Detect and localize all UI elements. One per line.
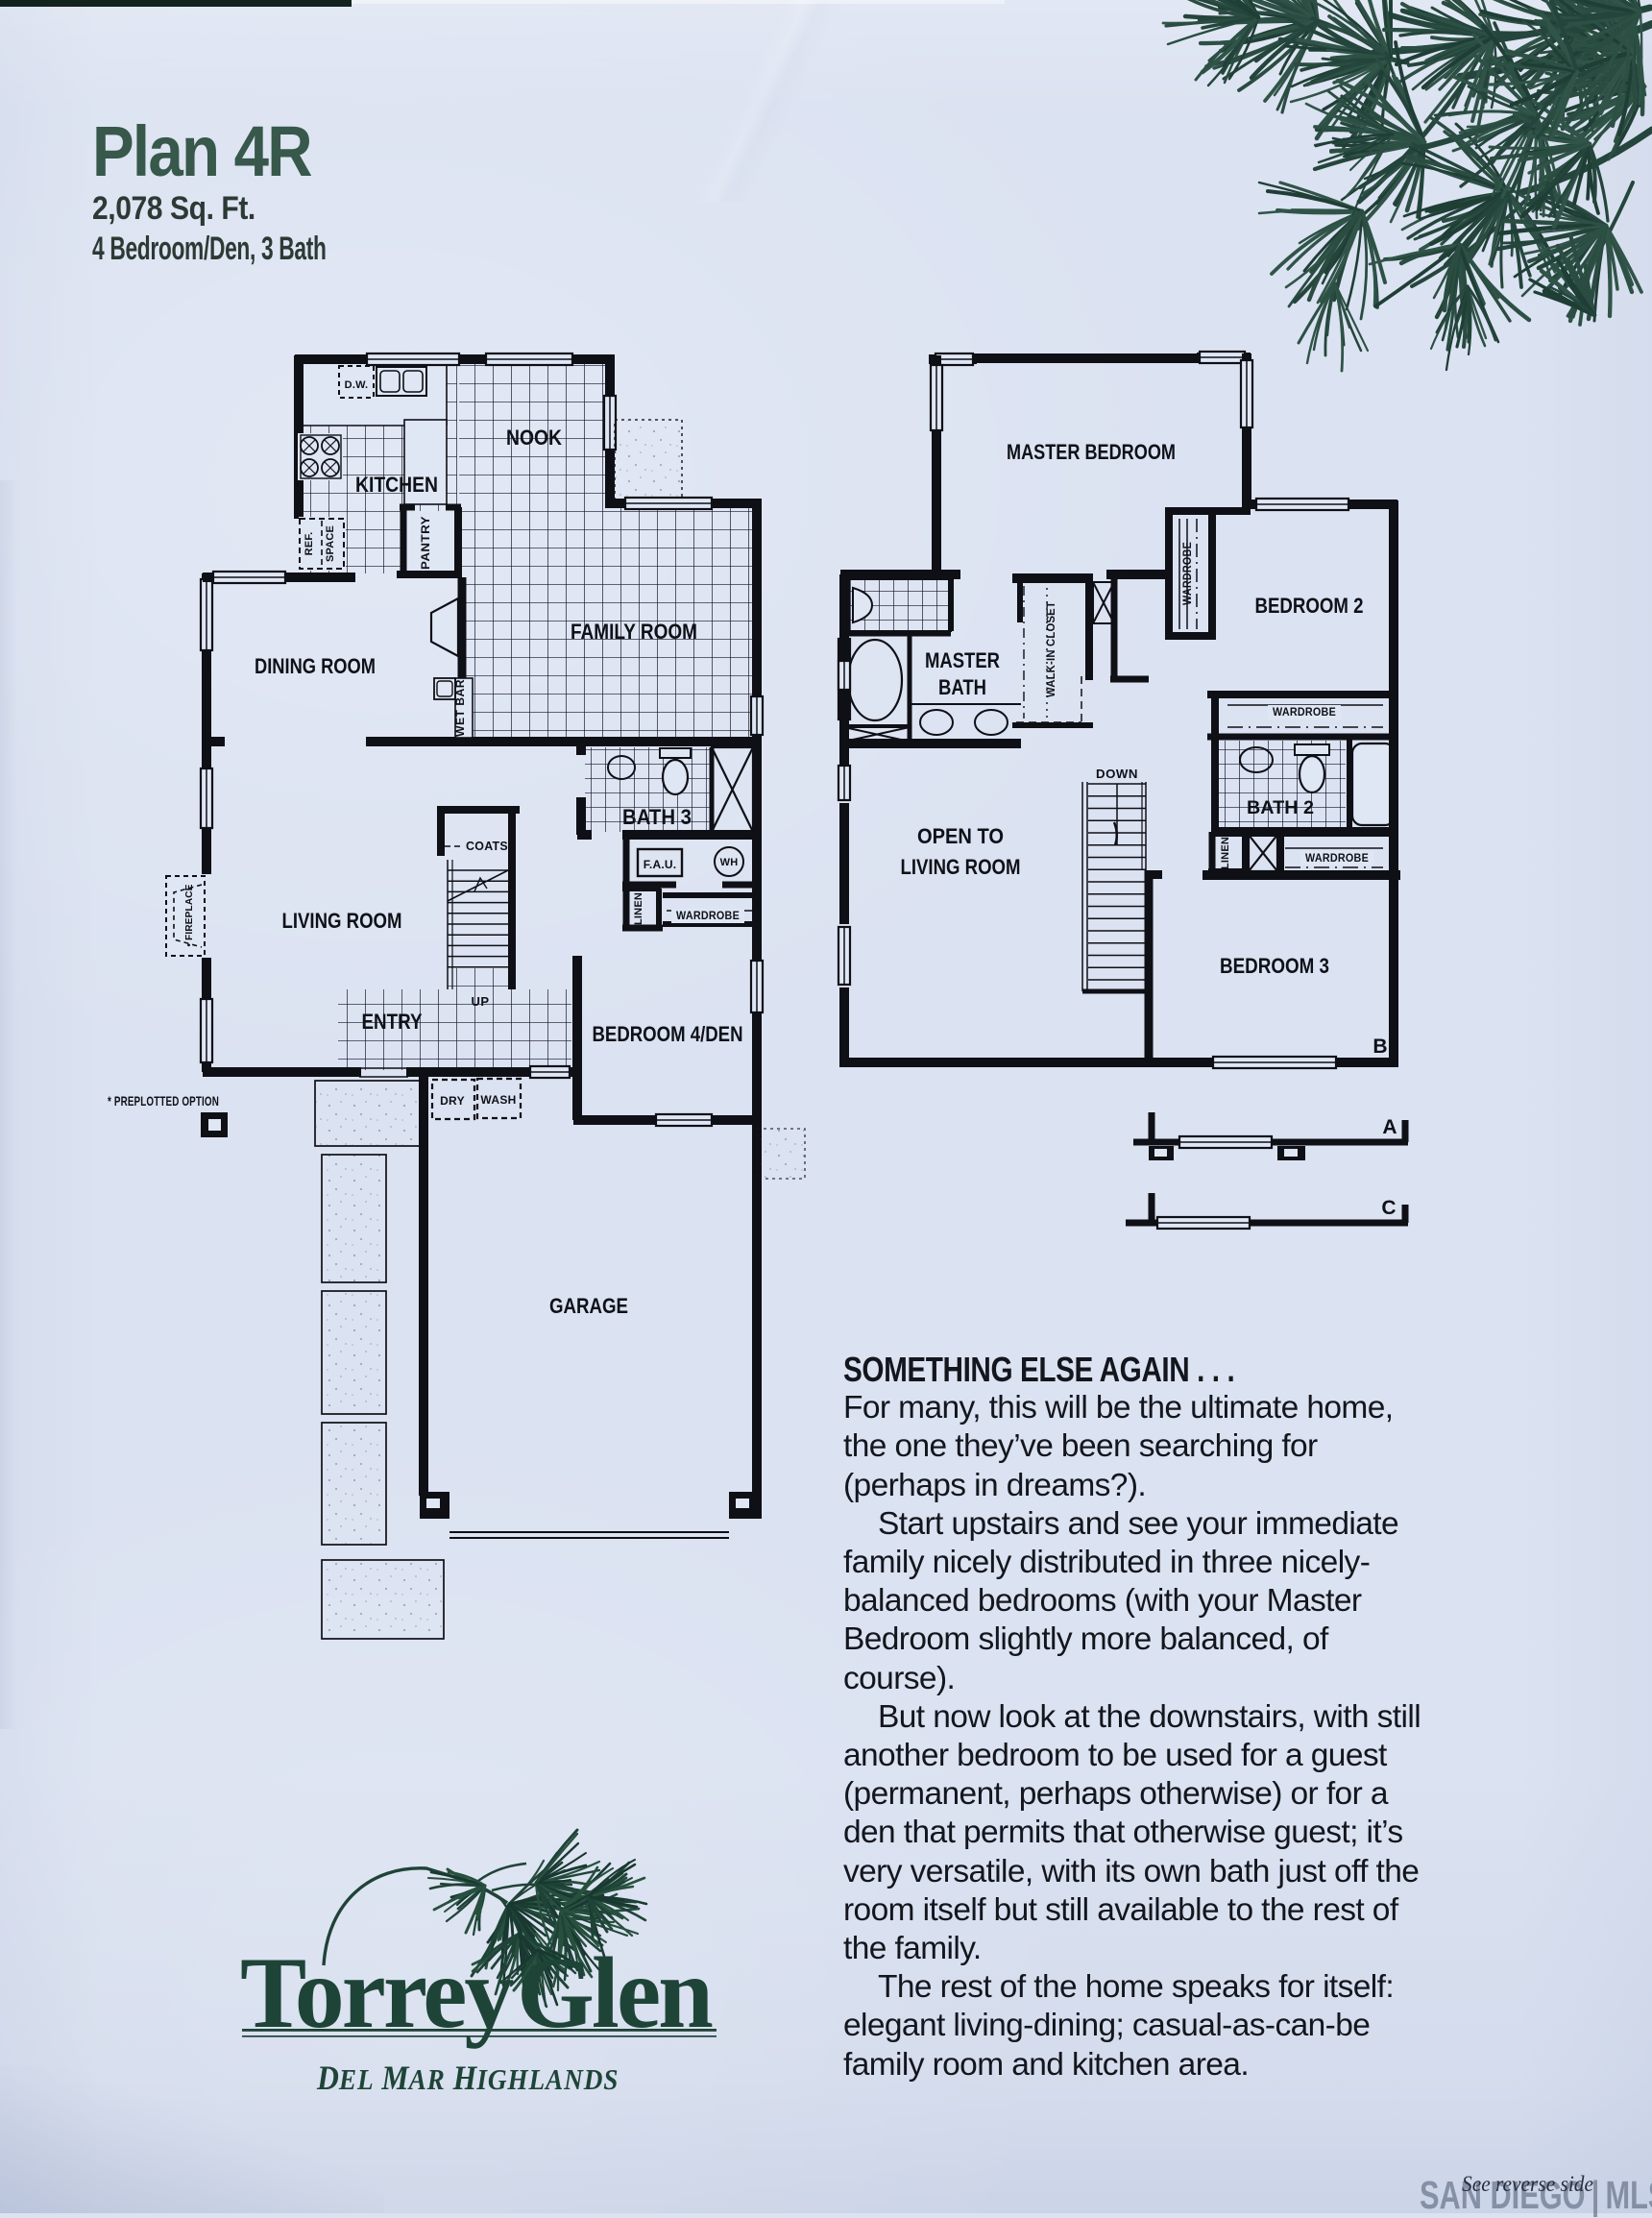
svg-text:LINEN: LINEN [1220,837,1231,869]
svg-text:DOWN: DOWN [1096,767,1138,781]
svg-text:• FIREPLACE: • FIREPLACE [184,884,195,946]
svg-text:COATS: COATS [466,839,508,853]
svg-text:WALK-IN CLOSET: WALK-IN CLOSET [1044,601,1057,697]
svg-text:LIVING ROOM: LIVING ROOM [282,909,402,933]
svg-text:F.A.U.: F.A.U. [644,858,677,871]
svg-text:SPACE: SPACE [325,525,336,562]
svg-text:BATH 2: BATH 2 [1247,798,1314,818]
svg-text:WASH: WASH [480,1093,516,1107]
svg-text:* PREPLOTTED OPTION: * PREPLOTTED OPTION [108,1093,219,1109]
svg-text:MASTER: MASTER [925,648,1000,672]
svg-text:BATH: BATH [938,675,986,699]
svg-text:BEDROOM 3: BEDROOM 3 [1220,954,1329,978]
svg-text:OPEN TO: OPEN TO [917,824,1004,848]
svg-text:WARDROBE: WARDROBE [1273,705,1336,719]
svg-text:MASTER BEDROOM: MASTER BEDROOM [1007,440,1176,464]
svg-text:C: C [1381,1197,1396,1219]
svg-text:B: B [1373,1036,1387,1058]
svg-text:ENTRY: ENTRY [362,1010,423,1034]
svg-text:LINEN: LINEN [633,892,644,925]
svg-text:GARAGE: GARAGE [549,1294,628,1318]
svg-text:BEDROOM 2: BEDROOM 2 [1255,594,1364,618]
svg-text:UP: UP [471,994,489,1009]
svg-text:WH: WH [720,857,739,868]
svg-text:NOOK: NOOK [506,426,562,450]
svg-text:A: A [1382,1116,1397,1138]
svg-text:KITCHEN: KITCHEN [355,473,438,497]
svg-text:LIVING ROOM: LIVING ROOM [901,855,1021,879]
svg-text:DINING ROOM: DINING ROOM [255,654,376,678]
svg-text:WARDROBE: WARDROBE [1180,542,1194,605]
svg-text:REF.: REF. [304,532,315,556]
svg-text:WARDROBE: WARDROBE [1305,851,1369,865]
svg-text:FAMILY ROOM: FAMILY ROOM [571,620,697,644]
svg-text:BATH 3: BATH 3 [622,805,692,829]
svg-text:D.W.: D.W. [345,379,369,391]
svg-text:BEDROOM 4/DEN: BEDROOM 4/DEN [593,1022,743,1046]
svg-text:WARDROBE: WARDROBE [676,909,740,922]
svg-text:DRY: DRY [440,1094,465,1108]
svg-text:PANTRY: PANTRY [419,516,432,570]
